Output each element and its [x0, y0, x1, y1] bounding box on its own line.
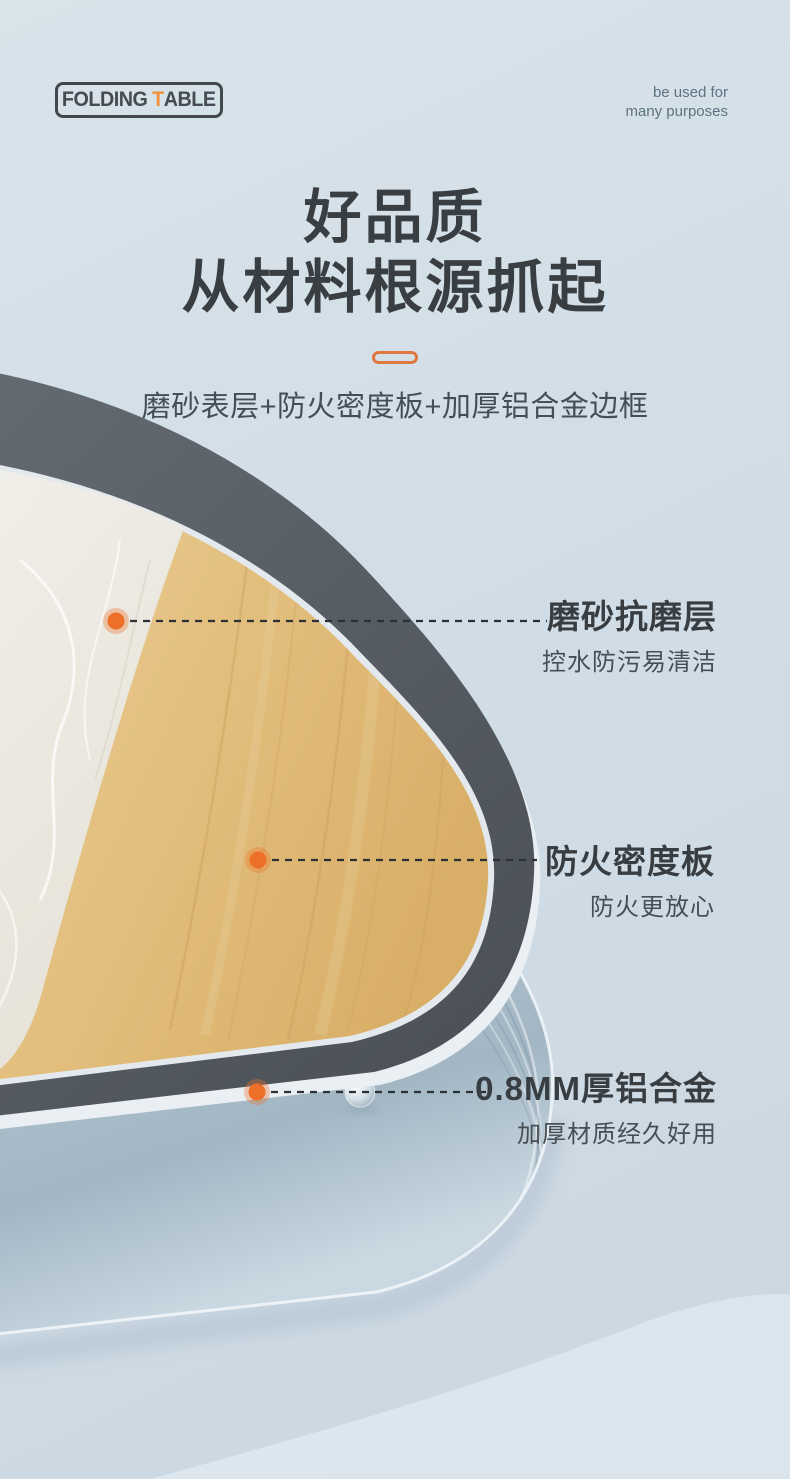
callout-title: 0.8MM厚铝合金: [475, 1068, 717, 1110]
logo-word-folding: FOLDING: [62, 88, 148, 112]
subtitle: 磨砂表层+防火密度板+加厚铝合金边框: [0, 383, 790, 425]
logo-box: FOLDINGTABLE: [55, 82, 223, 118]
brand-tagline: be used for many purposes: [625, 84, 728, 122]
marker-dot-2: [250, 852, 267, 869]
page-title: 好品质 从材料根源抓起: [0, 183, 790, 323]
tagline-line1: be used for: [625, 84, 728, 103]
tagline-line2: many purposes: [625, 103, 728, 122]
callout-desc: 控水防污易清洁: [542, 647, 717, 679]
marker-dot-1: [108, 613, 125, 630]
callout-frosted-layer: 磨砂抗磨层 控水防污易清洁: [542, 596, 717, 679]
callout-desc: 防火更放心: [545, 892, 715, 924]
marker-dot-3: [249, 1084, 266, 1101]
callout-title: 磨砂抗磨层: [542, 596, 717, 638]
logo-accent-letter: T: [152, 88, 164, 112]
logo-text: FOLDINGTABLE: [62, 88, 216, 112]
callout-desc: 加厚材质经久好用: [475, 1119, 717, 1151]
callout-aluminum: 0.8MM厚铝合金 加厚材质经久好用: [475, 1068, 717, 1151]
page-background: FOLDINGTABLE be used for many purposes 好…: [0, 0, 790, 1479]
divider-pill: [372, 351, 418, 364]
callout-density-board: 防火密度板 防火更放心: [545, 841, 715, 924]
callout-title: 防火密度板: [545, 841, 715, 883]
title-line2: 从材料根源抓起: [0, 253, 790, 323]
title-line1: 好品质: [0, 183, 790, 253]
logo-word-able: ABLE: [164, 88, 216, 112]
